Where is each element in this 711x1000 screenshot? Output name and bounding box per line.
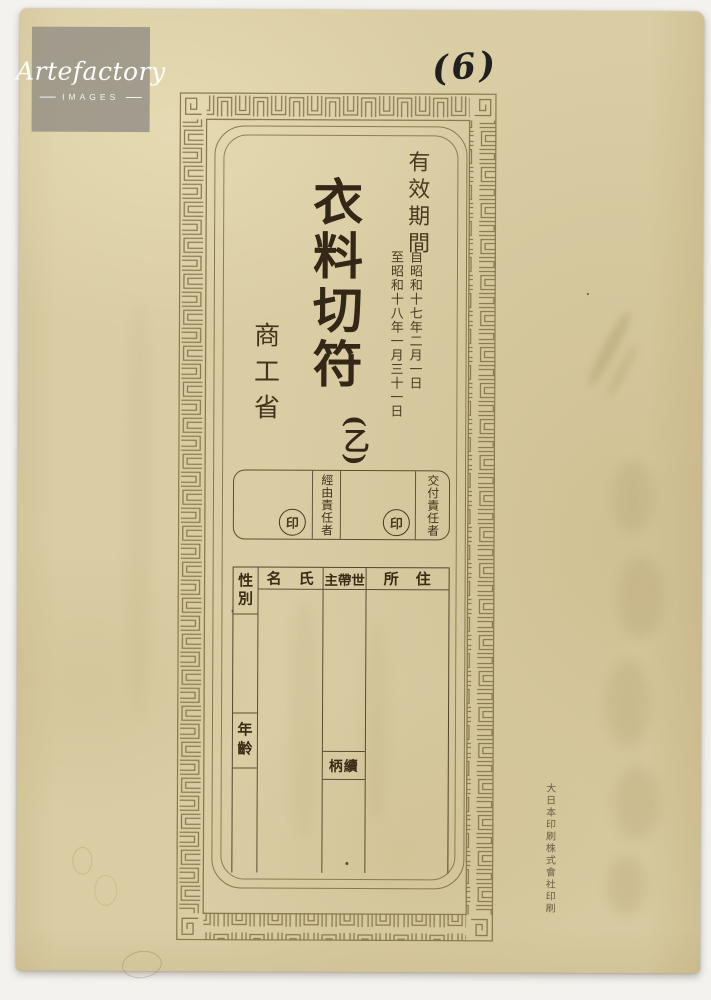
ticket-title: 衣料切符 [302, 176, 359, 416]
issue-responsible-label: 交付責任者 [416, 471, 449, 539]
via-label-cell: 經由責任者 [312, 471, 341, 539]
printer-credit: 大日本印刷株式會社印刷 [538, 783, 555, 918]
paper-speck [587, 293, 589, 295]
watermark-brand: Artefactory [16, 56, 166, 86]
header-name: 名 氏 [259, 568, 323, 590]
relation-label: 柄續 [323, 751, 365, 780]
issue-label-cell: 交付責任者 [415, 471, 449, 539]
paper-stain [72, 847, 92, 875]
via-responsible-label: 經由責任者 [313, 471, 340, 539]
show-through-mark [584, 308, 635, 389]
handwritten-page-number: (6) [430, 44, 500, 90]
header-address: 所 住 [367, 568, 449, 590]
watermark-rule-left [40, 96, 56, 97]
watermark-rule-right [125, 96, 141, 97]
issuer-name: 商工省 [247, 322, 278, 442]
watermark-subtitle: IMAGES [62, 92, 119, 102]
show-through-mark [606, 661, 650, 747]
watermark: Artefactory IMAGES [32, 27, 150, 133]
watermark-subtitle-row: IMAGES [40, 92, 141, 102]
table-column-line [364, 568, 366, 873]
stamp-box: 印 經由責任者 印 交付責任者 [233, 469, 450, 540]
show-through-mark [617, 556, 663, 638]
header-sex: 性別 [233, 567, 257, 614]
via-seal-cell: 印 [234, 470, 312, 538]
seal-mark: 印 [383, 509, 410, 536]
paper-sheet: Artefactory IMAGES (6) [16, 9, 704, 974]
validity-from: 自昭和十七年二月一日 [404, 250, 424, 420]
age-label: 年齡 [233, 712, 257, 768]
issue-seal-cell: 印 [341, 471, 415, 539]
table-column-line [321, 568, 323, 873]
validity-dates: 自昭和十七年二月一日 至昭和十八年一月三十一日 [377, 250, 424, 420]
show-through-mark [613, 766, 659, 840]
show-through-mark [607, 856, 645, 914]
registration-table: 性別 名 氏 主帶世 所 住 年齡 柄續 [231, 566, 449, 873]
seal-mark: 印 [279, 509, 306, 536]
show-through-mark [125, 299, 153, 719]
paper-stain [94, 875, 117, 906]
show-through-mark [612, 461, 654, 533]
validity-to: 至昭和十八年一月三十一日 [385, 250, 405, 420]
paper-stain [120, 948, 163, 980]
photo-background: { "watermark": { "brand": "Artefactory",… [0, 0, 711, 1000]
header-household-head: 主帶世 [324, 568, 366, 590]
